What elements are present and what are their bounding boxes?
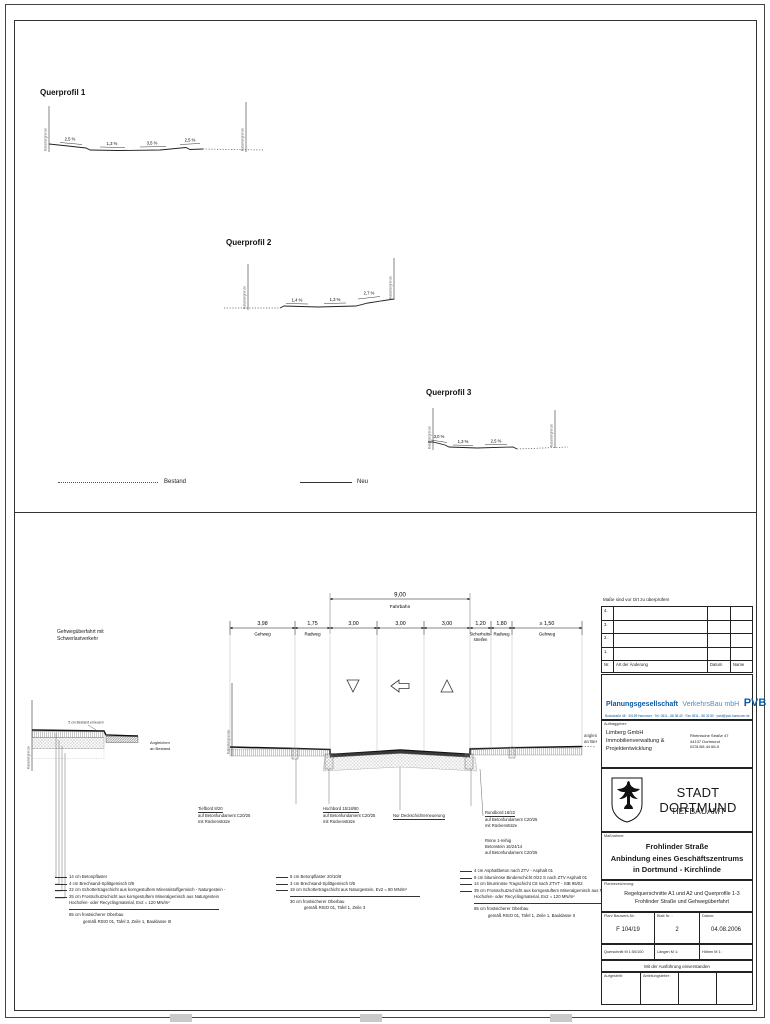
- detail-left-title-1: Gehwegüberfahrt mit: [57, 629, 104, 636]
- qp2-slope-1: 1,4 %: [292, 298, 303, 303]
- list-item-continuation: Hochofen- oder Recyclingmaterial, Ev2 = …: [55, 900, 250, 907]
- callout-tiefbord: Tiefbord 8/20 auf Betonfundament C20/25 …: [198, 806, 284, 825]
- pvb-logo-line: Planungsgesellschaft VerkehrsBau mbH PVB: [606, 693, 770, 711]
- client-address: Rheinische Straße 47 44137 Dortmund 0231…: [690, 733, 728, 750]
- lane-arrow-left-icon: [391, 680, 409, 692]
- detail-left-summary: 65 cm frostsicherer Oberbau gemäß RStO 0…: [69, 909, 219, 925]
- center-layer-list: 8 cm Betonpflaster 20/10/8 3 cm Brechsan…: [276, 874, 461, 912]
- qp2-kg-right: Katastergrenze: [389, 276, 393, 299]
- center-summary: 30 cm frostsicherer Oberbau gemäß RStO 0…: [290, 896, 420, 912]
- pvb-address: Bockstraße 48 · 30159 Hannover · Tel. 05…: [605, 714, 750, 718]
- revision-row: 2.: [602, 633, 752, 646]
- summary-line: 65 cm frostsicherer Oberbau: [69, 912, 219, 919]
- callout-rundbord: Rundbord 18/22 auf Betonfundament C20/25…: [485, 810, 571, 829]
- list-item: 22 cm Schottertragschicht aus korngestuf…: [55, 887, 250, 894]
- revision-header-row: Nr. Art der Änderung Datum Name: [602, 660, 752, 673]
- qp1-drawing: Katastergrenze Katastergrenze 2,5 % 1,3 …: [40, 100, 265, 165]
- pvb-name-rest: VerkehrsBau mbH: [682, 701, 739, 708]
- client-label: Auftraggeber:: [604, 722, 627, 726]
- qp2-slope-2: 1,3 %: [330, 297, 341, 302]
- titleblock-note: Maße sind vor Ort zu überprüfen!: [603, 597, 669, 604]
- svg-text:3,98: 3,98: [257, 621, 267, 627]
- svg-text:1,80: 1,80: [496, 621, 506, 627]
- svg-text:Gehweg: Gehweg: [254, 632, 271, 637]
- scale-hoehen: Höhen M 1:: [699, 945, 752, 959]
- legend-neu-line: [300, 482, 352, 483]
- list-item: 14 cm Betonpflaster: [55, 874, 250, 881]
- summary-line: gemäß RStO 01, Tafel 1, Zeile 3: [290, 905, 420, 912]
- scales-row: Querschnitt M 1:50/100 Längen M 1: Höhen…: [601, 944, 753, 960]
- qp1-slope-1: 2,5 %: [65, 137, 76, 142]
- svg-text:1,20: 1,20: [475, 621, 485, 627]
- planbezeichnung-label: Planbezeichnung:: [604, 882, 634, 886]
- legend-bestand-label: Bestand: [164, 478, 186, 486]
- svg-text:Sicherheits-: Sicherheits-: [469, 632, 492, 637]
- summary-line: 30 cm frostsicherer Oberbau: [290, 899, 420, 906]
- revision-table: 4. 3. 2. 1. Nr. Art der Änderung Datum N…: [601, 606, 753, 673]
- detail-left-note-top: 5 cm Bestand erneuern: [68, 721, 103, 725]
- massnahme-text: Frohlinder Straße Anbindung eines Geschä…: [606, 841, 748, 876]
- svg-text:3,00: 3,00: [442, 621, 452, 627]
- svg-text:3,00: 3,00: [348, 621, 358, 627]
- detail-left-title-2: Schwerlastverkehr: [57, 636, 98, 643]
- svg-text:Radweg: Radweg: [493, 632, 510, 637]
- lane-arrows: [347, 680, 453, 692]
- massnahme-label: Maßnahme:: [604, 834, 624, 838]
- blatt-cell: Blatt Nr. : 2: [654, 913, 699, 943]
- main-right-note-1: angleichen: [584, 733, 597, 738]
- plan-number-row: Plan/ Bauwerk-Nr: F 104/19 Blatt Nr. : 2…: [601, 912, 753, 944]
- fold-mark: [550, 1014, 572, 1022]
- qp3-slope-1: 3,0 %: [434, 434, 445, 439]
- list-item: 25 cm Frostschutzschicht aus korngestuft…: [55, 894, 250, 901]
- detail-left-kg: Katastergrenze: [27, 746, 31, 769]
- approval-row: Mit der Ausführung einverstanden: [601, 960, 753, 972]
- qp1-title: Querprofil 1: [40, 88, 85, 97]
- dim-total-value: 9,00: [394, 593, 406, 599]
- callout-deckschicht: Nur Deckschichterneuerung: [393, 813, 483, 820]
- lane-arrow-up-icon: [441, 680, 453, 692]
- svg-text:Radweg: Radweg: [304, 632, 321, 637]
- extension-lines: [230, 635, 582, 751]
- qp1-slope-2: 1,3 %: [107, 141, 118, 146]
- road-surface: [230, 747, 596, 772]
- dept-name: TIEFBAUAMT: [648, 806, 748, 816]
- qp2-slope-3: 2,7 %: [364, 291, 375, 296]
- qp2-title: Querprofil 2: [226, 238, 271, 247]
- scale-querschnitt: Querschnitt M 1:50/100: [602, 945, 654, 959]
- planbezeichnung-text: Regelquerschnitte A1 und A2 und Querprof…: [614, 890, 750, 906]
- svg-text:1,75: 1,75: [307, 621, 317, 627]
- detail-left-note-right-2: an Bestand: [150, 746, 190, 752]
- revision-row: 4.: [602, 607, 752, 620]
- qp1-kg-left: Katastergrenze: [44, 128, 48, 151]
- revision-row: 3.: [602, 620, 752, 633]
- summary-line: gemäß RStO 01, Tafel 3, Zeile 1, Bauklas…: [69, 919, 219, 926]
- drawing-sheet: Querprofil 1 Katastergrenze Katastergren…: [0, 0, 770, 1024]
- legend-bestand-line: [58, 482, 158, 483]
- revision-row: 1.: [602, 647, 752, 660]
- lane-arrow-down-icon: [347, 680, 359, 692]
- dortmund-crest-icon: [610, 776, 644, 824]
- qp1-slope-4: 2,5 %: [185, 138, 196, 143]
- pvb-logo-text: PVB: [744, 697, 767, 709]
- list-item: 4 cm Brechsand-Splittgemisch 0/5: [55, 881, 250, 888]
- scale-laengen: Längen M 1:: [654, 945, 699, 959]
- signature-row: Aufgestellt: Abteilungsleiter:: [601, 972, 753, 1005]
- dim-chain-labels: 3,98 Gehweg 1,75 Radweg 3,00 3,00 3,00 1…: [254, 621, 555, 642]
- dim-total-label: Fahrbahn: [390, 604, 411, 610]
- pvb-logo-box: Planungsgesellschaft VerkehrsBau mbH PVB…: [601, 674, 753, 720]
- sig-empty-cell: [678, 973, 716, 1004]
- detail-left-layer-list: 14 cm Betonpflaster 4 cm Brechsand-Split…: [55, 874, 250, 925]
- qp1-kg-right: Katastergrenze: [241, 128, 245, 151]
- massnahme-box: Maßnahme: Frohlinder Straße Anbindung ei…: [601, 832, 753, 880]
- fold-mark: [170, 1014, 192, 1022]
- qp3-kg-left: Katastergrenze: [428, 426, 432, 449]
- svg-text:3,00: 3,00: [395, 621, 405, 627]
- main-kg: Katastergrenze: [227, 730, 231, 754]
- sig-aufgestellt-cell: Aufgestellt:: [602, 973, 640, 1004]
- sig-empty-cell: [716, 973, 752, 1004]
- legend-neu-label: Neu: [357, 478, 368, 486]
- client-name: Limberg GmbH Immobilienverwaltung & Proj…: [606, 729, 664, 753]
- detail-left-note-right: Angleichen an Bestand: [150, 740, 190, 751]
- svg-text:Gehweg: Gehweg: [539, 632, 556, 637]
- qp3-slope-2: 1,3 %: [458, 439, 469, 444]
- qp2-kg-left: Katastergrenze: [243, 286, 247, 309]
- list-item: 3 cm Brechsand-Splittgemisch 0/5: [276, 881, 461, 888]
- main-right-note-2: an Bestand: [584, 739, 597, 744]
- approval-text: Mit der Ausführung einverstanden: [602, 964, 752, 969]
- callout-rinne: Rinne 1-reihig Betonstein 16/24/14 auf B…: [485, 838, 571, 855]
- svg-text:≥ 1,50: ≥ 1,50: [540, 621, 555, 627]
- planbezeichnung-box: Planbezeichnung: Regelquerschnitte A1 un…: [601, 880, 753, 912]
- datum-cell: Datum: 04.08.2006: [699, 913, 752, 943]
- qp3-slope-3: 2,5 %: [491, 439, 502, 444]
- qp3-drawing: Katastergrenze Katastergrenze 3,0 % 1,3 …: [425, 400, 570, 470]
- qp3-title: Querprofil 3: [426, 388, 471, 397]
- pvb-name-bold: Planungsgesellschaft: [606, 701, 678, 708]
- list-item: 19 cm Schottertragschicht aus Naturgeste…: [276, 887, 461, 894]
- qp3-kg-right: Katastergrenze: [550, 424, 554, 447]
- dim-chain: [230, 621, 582, 635]
- sig-abteilungsleiter-cell: Abteilungsleiter:: [640, 973, 678, 1004]
- fold-mark: [360, 1014, 382, 1022]
- plannr-cell: Plan/ Bauwerk-Nr: F 104/19: [602, 913, 654, 943]
- list-item: 8 cm Betonpflaster 20/10/8: [276, 874, 461, 881]
- qp1-slope-3: 3,5 %: [147, 141, 158, 146]
- city-box: STADT DORTMUND TIEFBAUAMT: [601, 768, 753, 832]
- qp2-drawing: Katastergrenze Katastergrenze 1,4 % 1,3 …: [222, 252, 457, 327]
- main-section-drawing: 9,00 Fahrbahn 3,98 Gehweg 1,75 Radweg: [225, 588, 597, 820]
- client-box: Auftraggeber: Limberg GmbH Immobilienver…: [601, 720, 753, 768]
- svg-text:streifen: streifen: [474, 637, 488, 642]
